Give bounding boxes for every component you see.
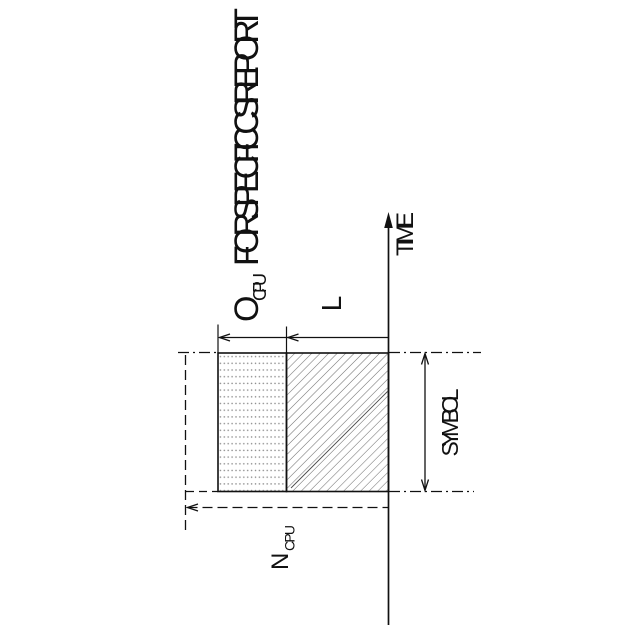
title-text: FOR SPECIFIC CSI REPORT: [228, 8, 266, 266]
time-axis-label: TIME: [392, 212, 419, 256]
title-subscript: CPU: [250, 273, 270, 301]
l-label: L: [316, 296, 347, 312]
csi-timing-diagram: TIME O CPU FOR SPECIFIC CSI REPORT L N: [0, 0, 640, 640]
l-hatched-block: [287, 353, 389, 492]
patent-figure-page: TIME O CPU FOR SPECIFIC CSI REPORT L N: [0, 0, 640, 640]
ncpu-label-subscript: CPU: [282, 525, 298, 551]
ocpu-dotted-block: [218, 353, 287, 492]
ncpu-label-symbol: N: [267, 553, 294, 570]
rotated-figure-container: TIME O CPU FOR SPECIFIC CSI REPORT L N: [0, 0, 640, 640]
symbol-label: SYMBOL: [437, 388, 463, 456]
